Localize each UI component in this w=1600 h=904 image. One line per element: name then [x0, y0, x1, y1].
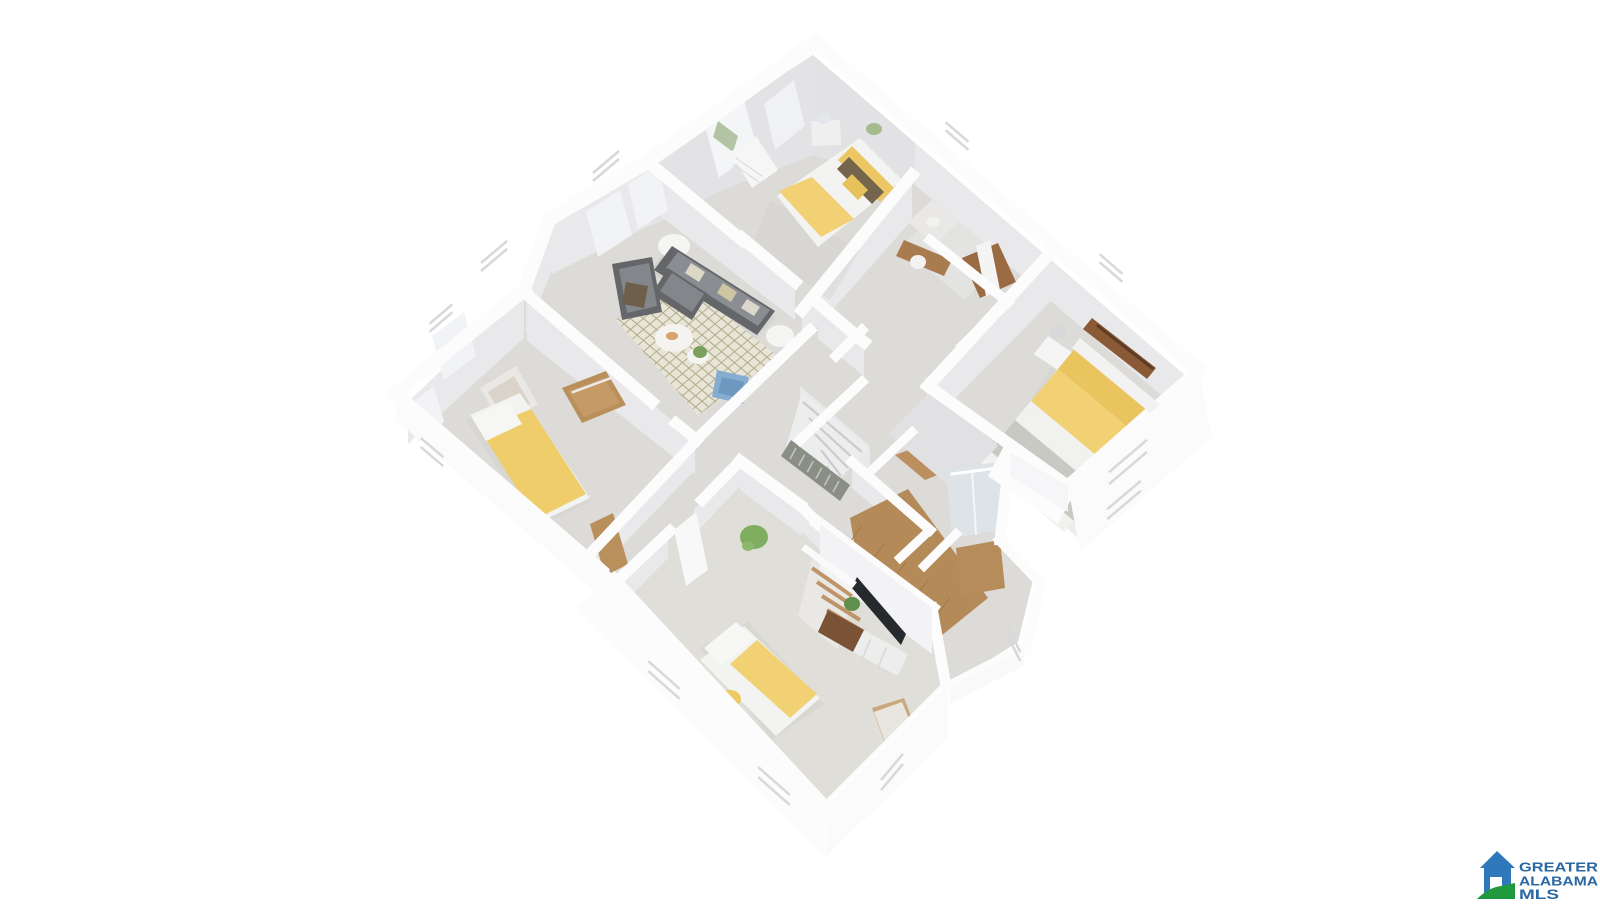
svg-text:MLS: MLS [1519, 886, 1559, 899]
svg-text:GREATER: GREATER [1519, 860, 1599, 875]
